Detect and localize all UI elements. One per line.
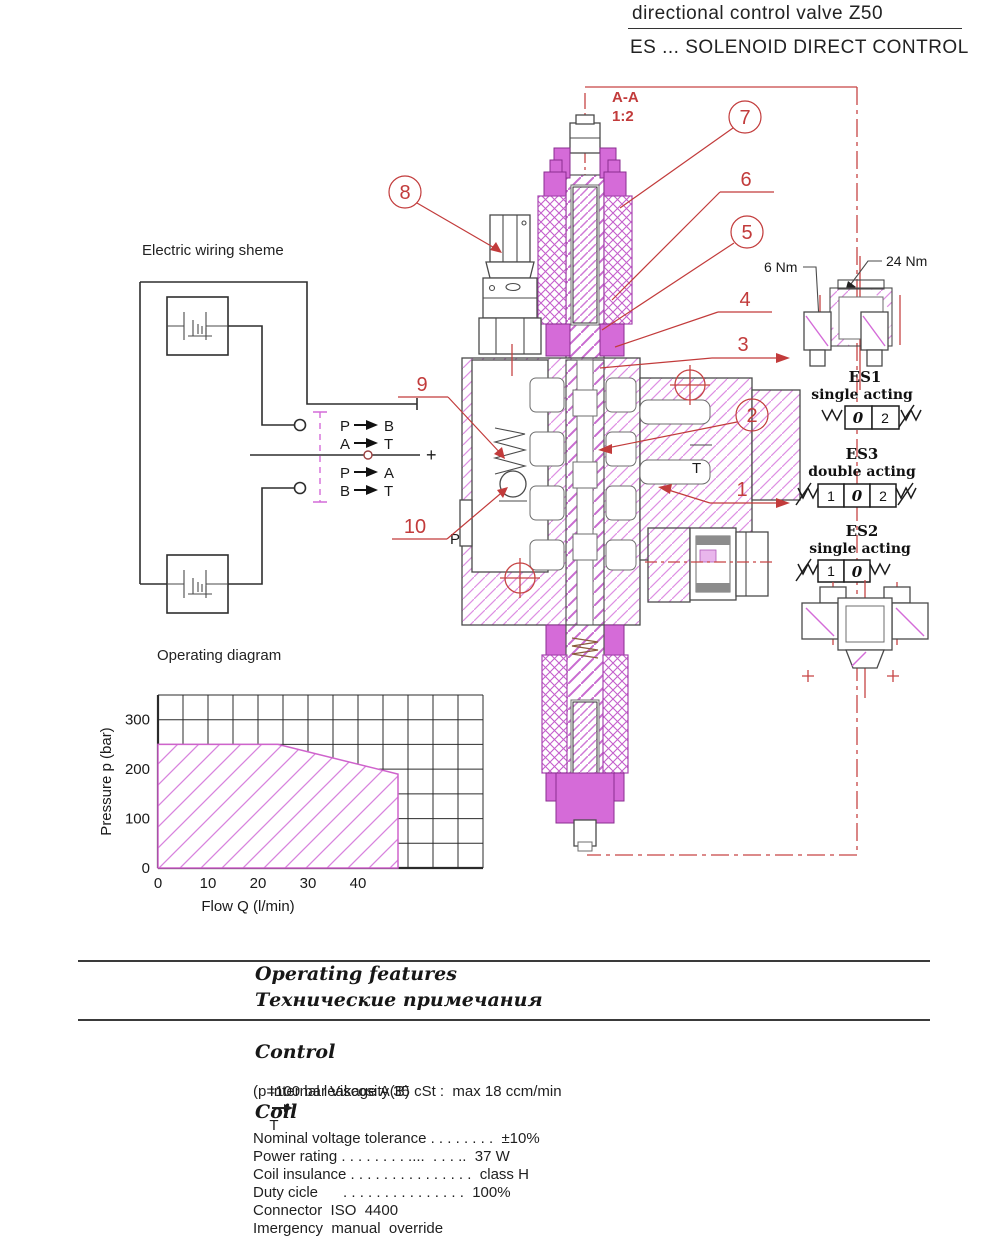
features-heading-en: Operating features — [255, 963, 457, 985]
svg-text:10: 10 — [200, 875, 217, 892]
spec-duty-cycle: Duty cicle . . . . . . . . . . . . . . .… — [253, 1184, 540, 1202]
solenoid-symbol-top — [167, 297, 228, 355]
es2-cell-0: 1 — [827, 563, 835, 579]
page-title: directional control valve Z50 — [632, 3, 883, 25]
map-from-1: P — [340, 418, 350, 435]
map-to-4: T — [384, 483, 393, 500]
es3-type: double acting — [808, 464, 916, 480]
page-subtitle: ES ... SOLENOID DIRECT CONTROL — [630, 37, 969, 59]
callout-5: 5 — [741, 222, 752, 244]
svg-text:0: 0 — [142, 860, 150, 877]
spec-power-rating: Power rating . . . . . . . . .... . . . … — [253, 1148, 540, 1166]
arrow-icon — [366, 485, 378, 495]
coil-spec-list: Nominal voltage tolerance . . . . . . . … — [253, 1130, 540, 1237]
arrow-icon — [366, 420, 378, 430]
callout-10: 10 — [404, 516, 426, 538]
map-to-1: B — [384, 418, 394, 435]
spring-icon — [870, 564, 890, 574]
variant-es3: ES3 double acting 1 0 2 — [796, 445, 916, 507]
es2-cell-1: 0 — [852, 563, 863, 581]
es1-code: ES1 — [849, 368, 882, 386]
callout-7: 7 — [739, 107, 750, 129]
map-from-3: P — [340, 465, 350, 482]
datasheet-page: directional control valve Z50 ES ... SOL… — [0, 0, 1000, 1237]
leakage-condition: (p=100 bar Viscosity 35 cSt : max 18 ccm… — [253, 1083, 562, 1100]
control-heading: Control — [255, 1041, 335, 1063]
chart-operating-area — [158, 744, 398, 868]
arrow-icon — [366, 467, 378, 477]
svg-text:0: 0 — [154, 875, 162, 892]
svg-text:300: 300 — [125, 712, 150, 729]
polarity-plus: + — [426, 445, 437, 465]
es3-cell-2: 2 — [879, 488, 887, 504]
es3-cell-1: 0 — [852, 487, 863, 505]
solenoid-symbol-bottom — [167, 555, 228, 613]
variant-es1: ES1 single acting 0 2 — [811, 368, 921, 429]
coil-heading: Coil — [255, 1101, 297, 1123]
svg-text:200: 200 — [125, 761, 150, 778]
port-t-label: T — [692, 460, 701, 477]
callout-8: 8 — [399, 182, 410, 204]
top-coil — [538, 196, 566, 324]
spring-icon — [822, 410, 842, 420]
svg-text:Flow Q (l/min): Flow Q (l/min) — [201, 898, 294, 915]
bottom-coil — [542, 655, 567, 773]
callout-6: 6 — [740, 169, 751, 191]
variant-es2: ES2 single acting 1 0 — [796, 522, 911, 582]
map-to-2: T — [384, 436, 393, 453]
callout-2: 2 — [746, 405, 757, 427]
torque-small-label: 6 Nm — [764, 259, 797, 275]
es2-type: single acting — [809, 541, 911, 557]
port-p-label: P — [450, 531, 460, 548]
section-divider-bottom — [78, 1019, 930, 1021]
callout-9: 9 — [416, 374, 427, 396]
svg-text:Pressure p (bar): Pressure p (bar) — [98, 727, 115, 835]
es1-type: single acting — [811, 387, 913, 403]
svg-text:40: 40 — [350, 875, 367, 892]
es1-cell-0: 0 — [853, 409, 864, 427]
torque-large-label: 24 Nm — [886, 253, 927, 269]
features-heading-ru: Технические примечания — [255, 989, 543, 1011]
spec-coil-insulance: Coil insulance . . . . . . . . . . . . .… — [253, 1166, 540, 1184]
operating-diagram-chart: 0100200300010203040Flow Q (l/min)Pressur… — [95, 680, 495, 930]
section-view-scale: 1:2 — [612, 108, 634, 125]
callout-3: 3 — [737, 334, 748, 356]
map-from-2: A — [340, 436, 350, 453]
chart-title: Operating diagram — [157, 647, 281, 664]
es3-code: ES3 — [846, 445, 879, 463]
svg-text:30: 30 — [300, 875, 317, 892]
section-divider-top — [78, 960, 930, 962]
bottom-top-view — [802, 580, 928, 698]
wiring-scheme: P B A T P A B T + — [140, 282, 437, 613]
spec-manual-override: Imergency manual override — [253, 1220, 540, 1237]
es2-code: ES2 — [846, 522, 879, 540]
arrow-icon — [366, 438, 378, 448]
map-to-3: A — [384, 465, 394, 482]
section-view-label: A-A — [612, 89, 639, 106]
spec-nominal-voltage: Nominal voltage tolerance . . . . . . . … — [253, 1130, 540, 1148]
callout-1: 1 — [736, 479, 747, 501]
torque-top-view: 6 Nm 24 Nm — [764, 253, 927, 390]
svg-text:100: 100 — [125, 811, 150, 828]
map-from-4: B — [340, 483, 350, 500]
es1-cell-1: 2 — [881, 410, 889, 426]
callout-4: 4 — [739, 289, 750, 311]
title-underline — [628, 28, 962, 29]
svg-text:20: 20 — [250, 875, 267, 892]
spec-connector: Connector ISO 4400 — [253, 1202, 540, 1220]
es3-cell-0: 1 — [827, 488, 835, 504]
